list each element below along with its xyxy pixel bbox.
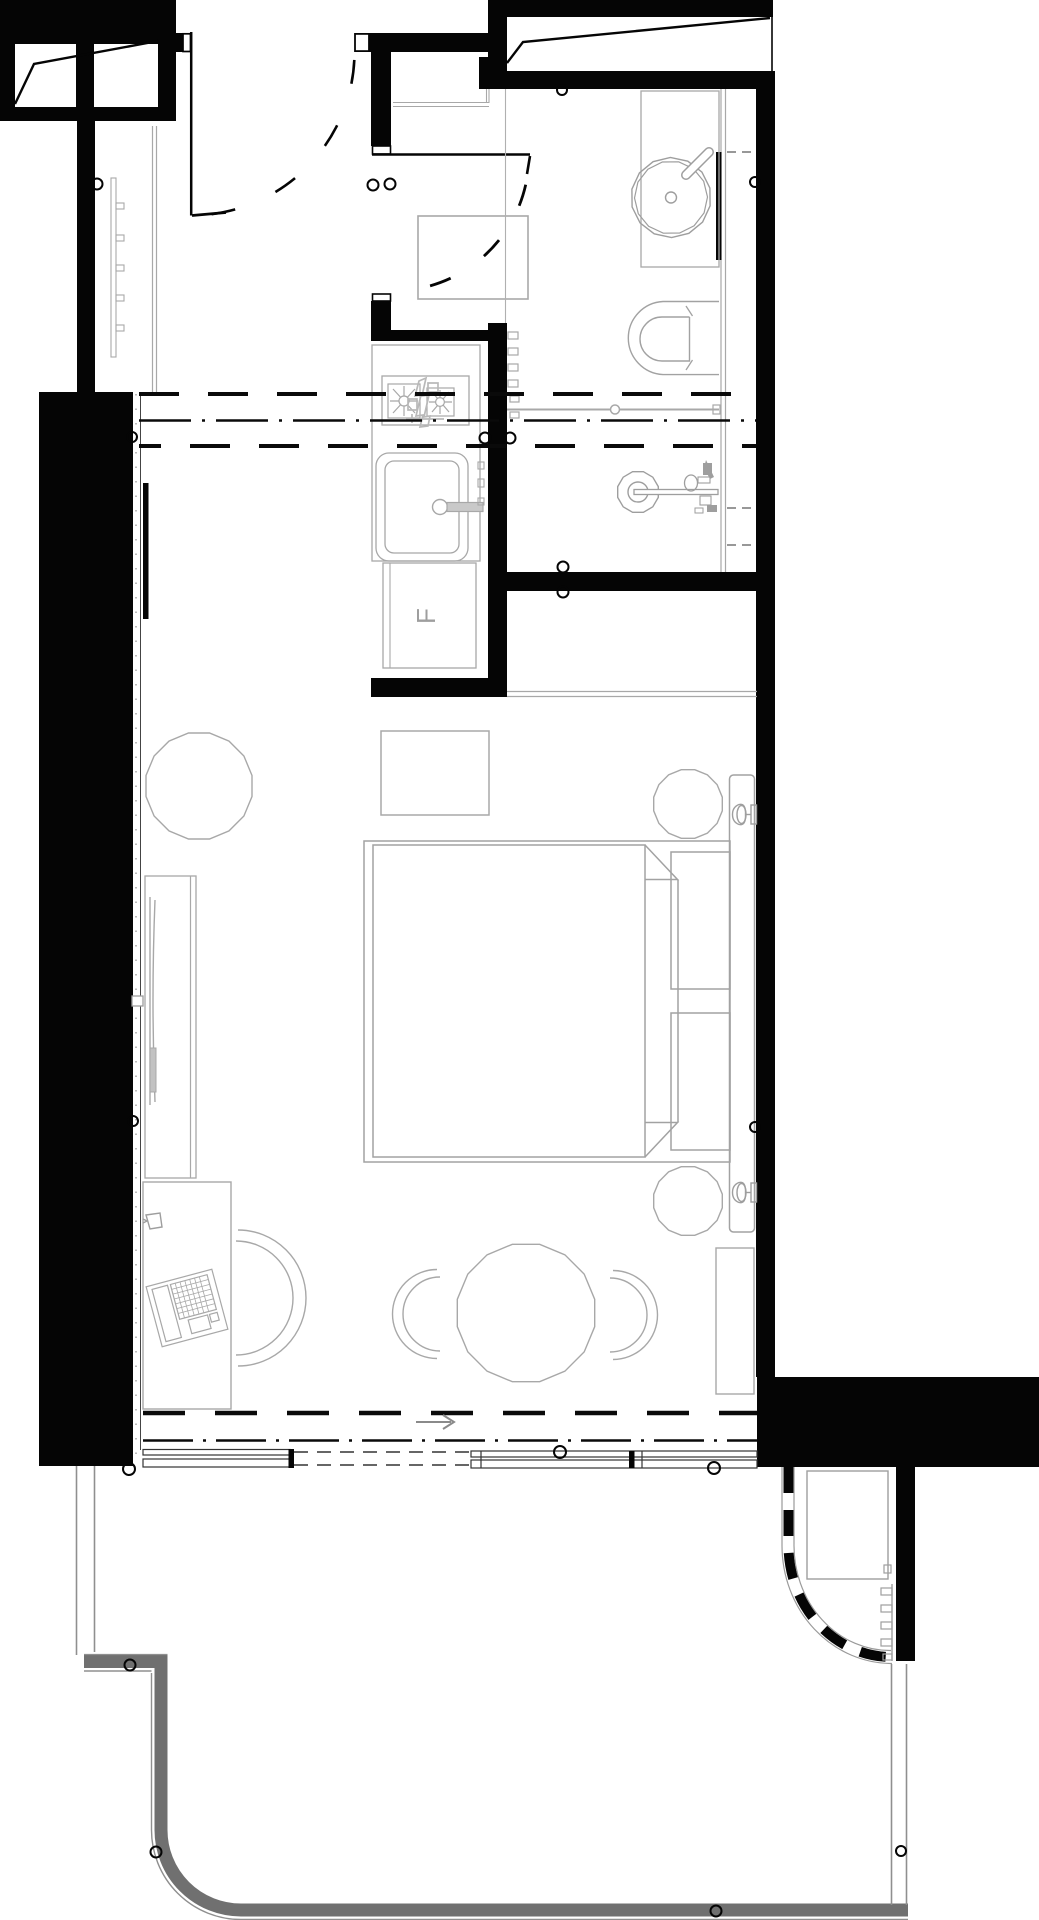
svg-text:F: F (411, 608, 441, 624)
